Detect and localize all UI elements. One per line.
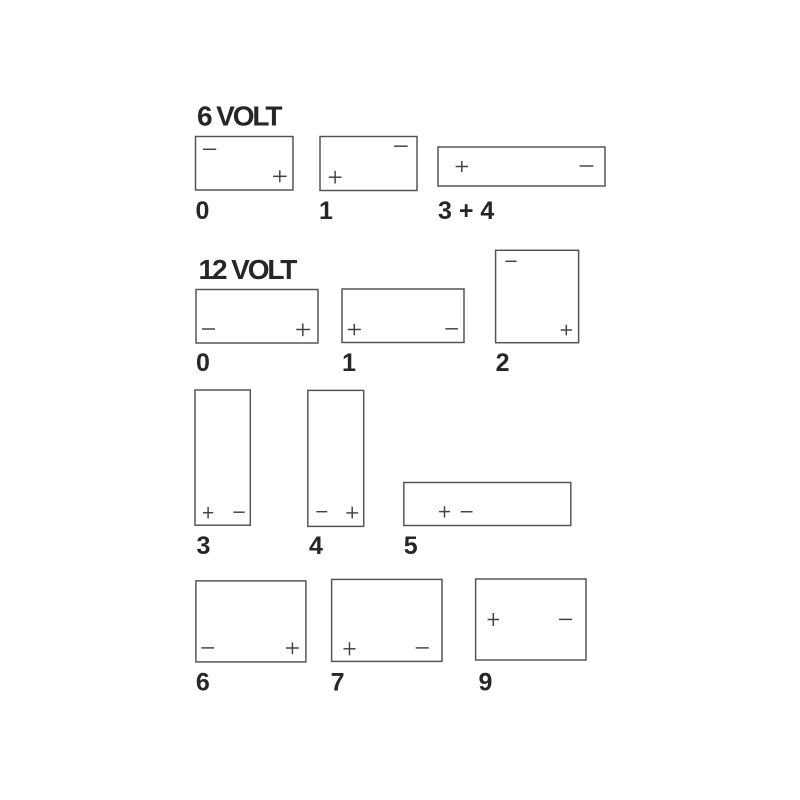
svg-text:3: 3: [197, 532, 211, 560]
svg-text:0: 0: [196, 197, 210, 225]
svg-text:12 VOLT: 12 VOLT: [199, 254, 298, 285]
svg-text:6: 6: [196, 669, 210, 697]
svg-text:1: 1: [319, 197, 333, 225]
svg-text:6 VOLT: 6 VOLT: [197, 101, 282, 132]
svg-text:2: 2: [496, 349, 510, 377]
svg-text:4: 4: [309, 532, 323, 560]
svg-text:9: 9: [479, 669, 493, 697]
svg-text:7: 7: [331, 669, 345, 697]
svg-text:0: 0: [196, 349, 210, 377]
svg-text:5: 5: [404, 532, 418, 560]
svg-text:3 + 4: 3 + 4: [438, 197, 494, 225]
svg-text:1: 1: [342, 349, 356, 377]
